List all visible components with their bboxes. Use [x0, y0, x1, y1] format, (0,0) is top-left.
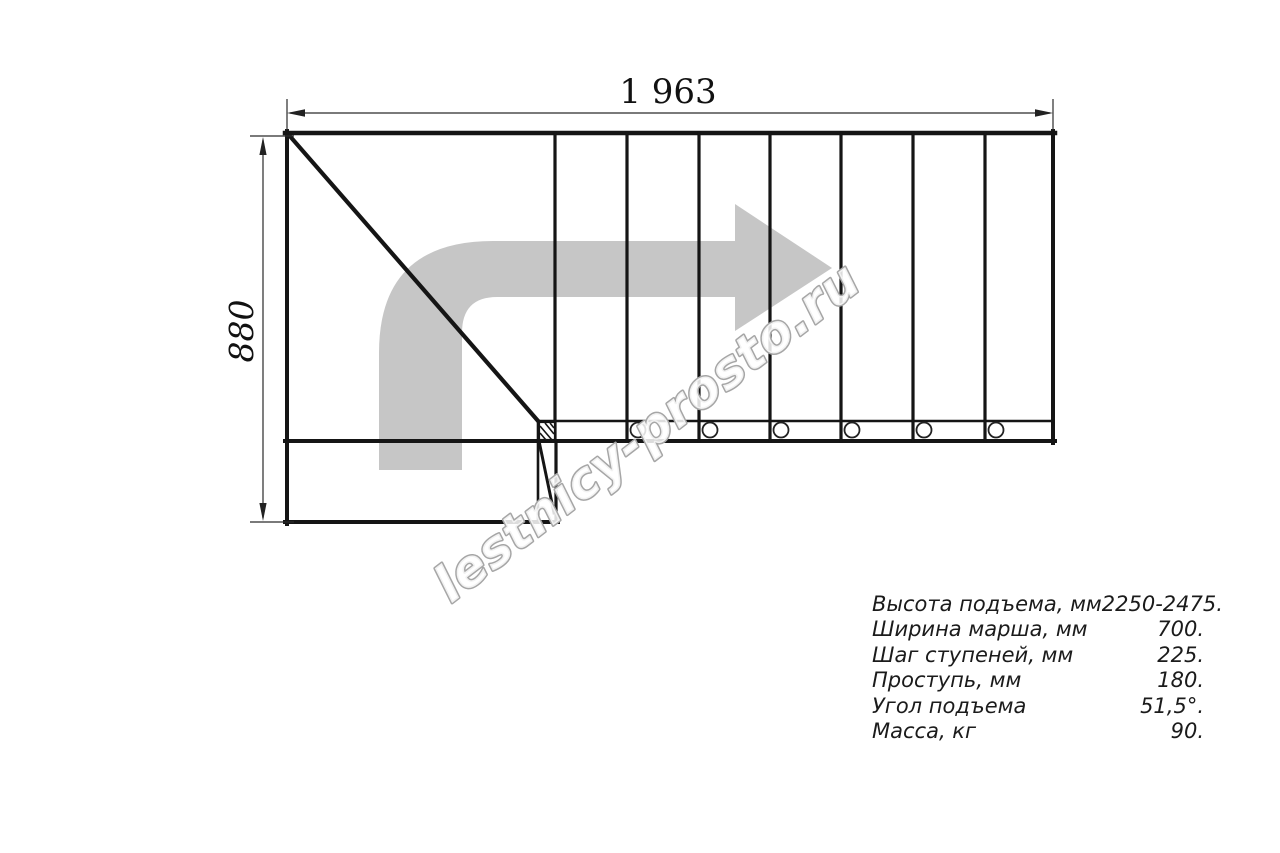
dim-arrowhead-top [259, 137, 266, 155]
spec-row: Масса, кг 90. [872, 719, 1204, 744]
staircase-plan-page: 1 963 880 lestnicy-prosto.ru Высота подъ… [0, 0, 1280, 853]
spec-label: Угол подъема [872, 694, 1026, 719]
spec-value: 180. [1157, 668, 1204, 693]
watermark-text: lestnicy-prosto.ru [423, 251, 871, 614]
spec-row: Высота подъема, мм 2250-2475. [872, 592, 1204, 617]
spec-value: 2250-2475. [1102, 592, 1223, 617]
dim-arrowhead-left [287, 109, 305, 117]
connector-circle [774, 423, 789, 438]
spec-value: 700. [1157, 617, 1204, 642]
dim-arrowhead-bottom [259, 503, 266, 521]
spec-row: Шаг ступеней, мм 225. [872, 643, 1204, 668]
height-dimension-label: 880 [222, 300, 261, 363]
spec-label: Высота подъема, мм [872, 592, 1102, 617]
post-hatch-square [539, 422, 555, 440]
width-dimension-label: 1 963 [619, 72, 716, 112]
connector-circle [917, 423, 932, 438]
connector-circle [845, 423, 860, 438]
spec-value: 90. [1171, 719, 1204, 744]
spec-row: Ширина марша, мм 700. [872, 617, 1204, 642]
spec-label: Проступь, мм [872, 668, 1021, 693]
spec-row: Угол подъема 51,5°. [872, 694, 1204, 719]
spec-label: Ширина марша, мм [872, 617, 1088, 642]
connector-circle [703, 423, 718, 438]
spec-value: 225. [1157, 643, 1204, 668]
specs-table: Высота подъема, мм 2250-2475. Ширина мар… [872, 592, 1204, 744]
spec-row: Проступь, мм 180. [872, 668, 1204, 693]
spec-label: Масса, кг [872, 719, 976, 744]
dim-arrowhead-right [1035, 109, 1053, 117]
connector-circle [989, 423, 1004, 438]
spec-value: 51,5°. [1140, 694, 1204, 719]
spec-label: Шаг ступеней, мм [872, 643, 1073, 668]
